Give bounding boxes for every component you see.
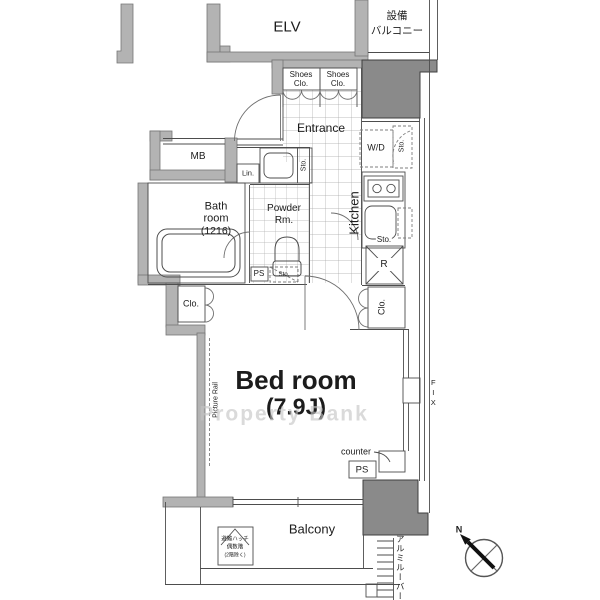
- floor-plan-drawing: [0, 0, 600, 600]
- storage-wd-label: Sto.: [399, 140, 406, 152]
- louver-label: アルミルーバー: [396, 535, 405, 600]
- storage-cabinet-label: Sto.: [301, 159, 308, 171]
- fix-window-label: FIX: [429, 378, 437, 408]
- storage-powder-label: Sto.: [279, 272, 290, 278]
- shoes-closet-1-label-line2: Clo.: [294, 80, 308, 88]
- bath-west-wall: [138, 183, 148, 283]
- shoes-closet-2-label-line1: Shoes: [327, 71, 350, 79]
- washer-dryer-label: W/D: [367, 144, 385, 153]
- kitchen-label: Kitchen: [348, 191, 361, 234]
- entrance-label: Entrance: [297, 122, 345, 134]
- bedroom-south-wall: [163, 497, 233, 507]
- equipment-balcony-label-line1: 設備: [387, 11, 408, 22]
- closet-left-bifold: [205, 288, 214, 322]
- bath-label-line1: Bath: [205, 202, 228, 213]
- hatch-label-line2: 偶数階: [227, 545, 244, 551]
- closet-right-bifold: [359, 289, 369, 327]
- hatch-label-line1: 避難ハッチ: [221, 537, 249, 543]
- refrigerator-label: R: [380, 260, 387, 270]
- east-wall-window-box: [403, 378, 420, 403]
- pillar-northeast: [362, 60, 437, 118]
- closet-left-label: Clo.: [183, 300, 199, 309]
- elv-label: ELV: [273, 20, 300, 35]
- storage-kitchen-label: Sto.: [376, 236, 392, 244]
- shoes-closet-1-label-line1: Shoes: [290, 71, 313, 79]
- powder-label-line2: Rm.: [275, 216, 293, 226]
- balcony-label: Balcony: [289, 523, 335, 536]
- closet-right-box: [368, 287, 405, 328]
- floor-tiles: [250, 90, 362, 283]
- bedroom-name-label: Bed room: [235, 367, 356, 393]
- entrance-door: [235, 95, 281, 141]
- mb-label: MB: [191, 152, 206, 162]
- shoes-closet-2-label-line2: Clo.: [331, 80, 345, 88]
- compass: [460, 534, 503, 577]
- burner-left: [373, 184, 381, 192]
- linen-label: Lin.: [242, 169, 254, 177]
- closet-west-wall: [166, 283, 178, 327]
- mb-right-wall: [225, 138, 237, 182]
- elv-right-wall: [355, 0, 368, 56]
- counter-arrow: [374, 452, 390, 462]
- entrance-north-wall: [272, 60, 362, 68]
- powder-label-line1: Powder: [267, 204, 301, 214]
- hatch-label-line3: (2階除く): [224, 554, 245, 559]
- balcony-drain-box: [366, 584, 377, 597]
- closet-right-label: Clo.: [378, 299, 387, 315]
- pillar-southeast: [363, 480, 428, 535]
- ps-counter-label: PS: [356, 465, 369, 475]
- entrance-door-jamb: [272, 60, 283, 94]
- bedroom-door: [305, 276, 359, 330]
- louver-slats: [377, 541, 393, 597]
- bath-label-line2: room: [203, 214, 228, 225]
- wall-stub-left: [117, 4, 133, 63]
- compass-north-label: N: [456, 526, 463, 535]
- watermark: Property Bank: [199, 404, 369, 425]
- burner-right: [387, 184, 395, 192]
- equipment-balcony-label-line2: バルコニー: [371, 26, 423, 37]
- compass-needle: [468, 542, 494, 568]
- ps-powder-label: PS: [254, 270, 265, 278]
- bath-label-line3: (1216): [201, 226, 231, 237]
- floor-plan: ELV 設備 バルコニー Shoes Clo. Shoes Clo. Entra…: [0, 0, 600, 600]
- counter-label: counter: [341, 448, 371, 457]
- mb-bottom-wall: [150, 170, 237, 180]
